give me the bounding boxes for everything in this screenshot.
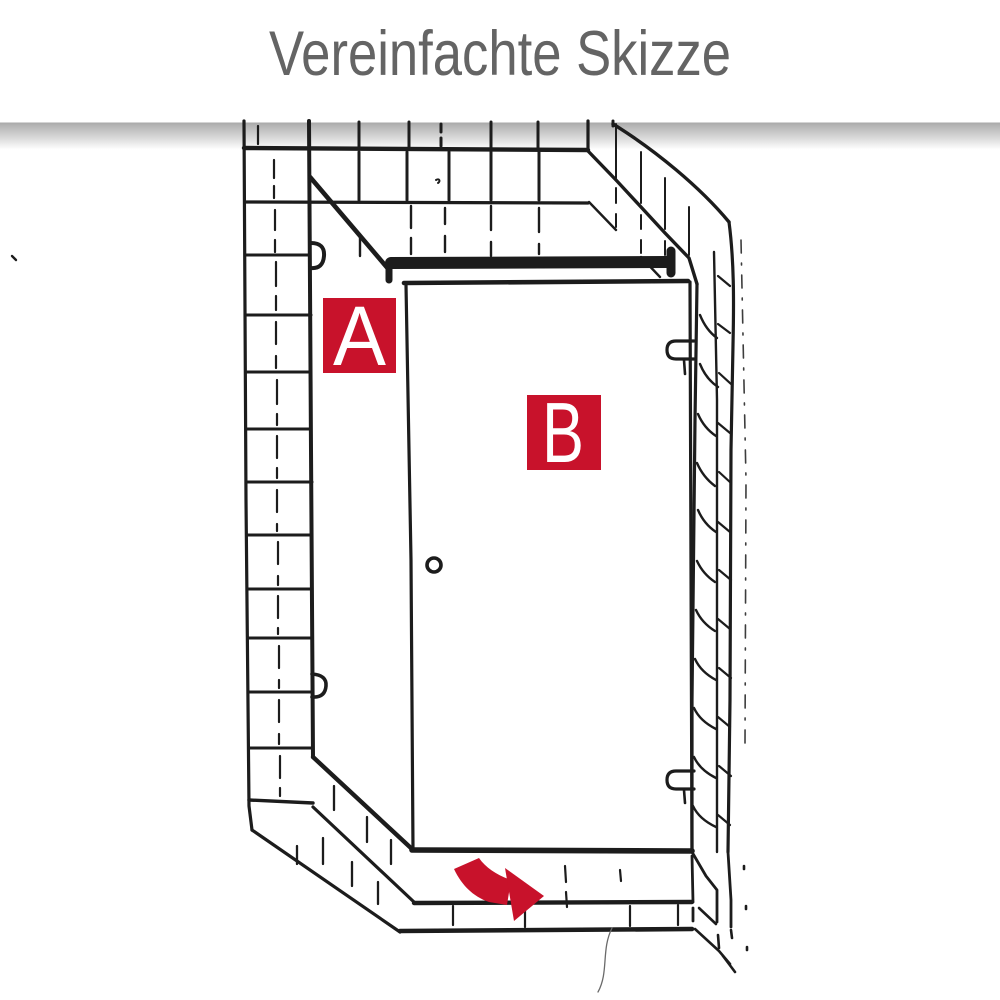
svg-text:A: A (333, 289, 386, 383)
svg-text:B: B (542, 386, 584, 481)
svg-text:Vereinfachte Skizze: Vereinfachte Skizze (269, 19, 731, 89)
